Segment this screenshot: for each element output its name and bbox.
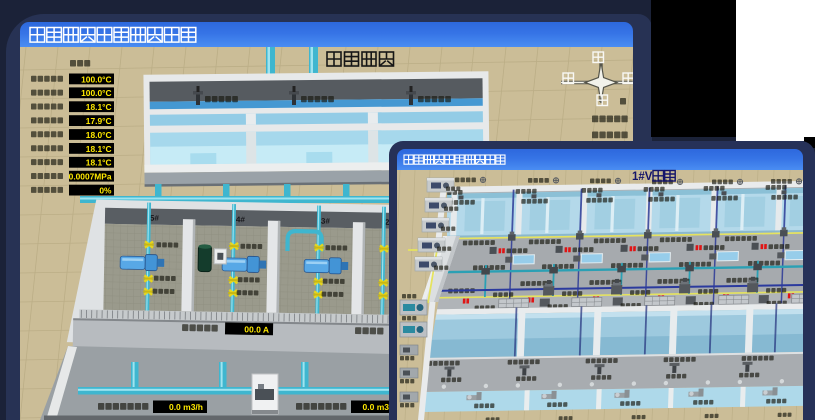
svg-text:18.1°C: 18.1°C: [86, 144, 112, 154]
svg-text:100.0°C: 100.0°C: [81, 88, 111, 98]
svg-text:0.0 m3: 0.0 m3: [363, 402, 390, 412]
svg-text:0.0007MPa: 0.0007MPa: [69, 172, 112, 182]
svg-text:100.0°C: 100.0°C: [81, 74, 111, 84]
svg-text:5#: 5#: [150, 214, 160, 223]
svg-text:18.1°C: 18.1°C: [86, 102, 112, 112]
svg-text:00.0 A: 00.0 A: [244, 324, 269, 334]
svg-text:0%: 0%: [99, 186, 112, 196]
svg-text:0.0 m3/h: 0.0 m3/h: [169, 402, 203, 412]
svg-text:3#: 3#: [321, 217, 331, 226]
svg-text:18.0°C: 18.0°C: [86, 130, 112, 140]
svg-text:4#: 4#: [236, 215, 246, 224]
svg-text:18.1°C: 18.1°C: [86, 158, 112, 168]
svg-text:17.9°C: 17.9°C: [86, 116, 112, 126]
svg-text:1#V: 1#V: [632, 171, 653, 183]
